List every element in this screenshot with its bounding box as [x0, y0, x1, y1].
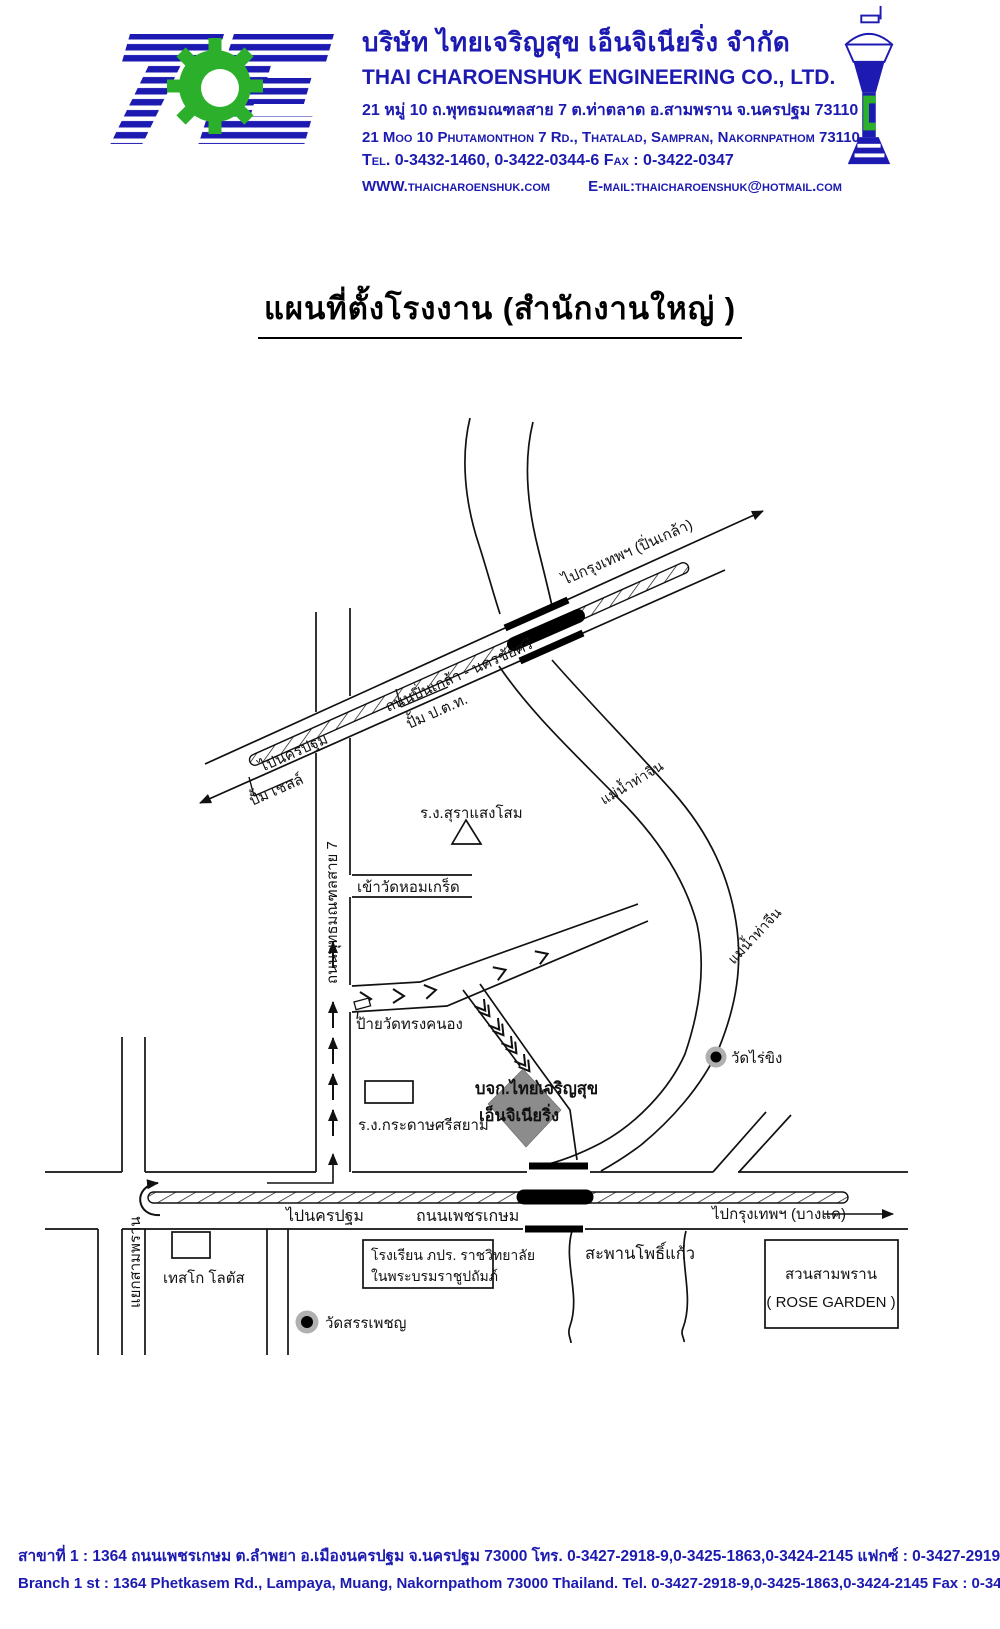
wat-sanphet-marker-icon: [296, 1311, 319, 1334]
label-wat-songkhanong-sign: ป้ายวัดทรงคนอง: [356, 1016, 463, 1033]
label-rose-garden-th: สวนสามพราน: [785, 1266, 877, 1283]
label-rose-garden-en: ( ROSE GARDEN ): [766, 1294, 895, 1311]
page-title-text: แผนที่ตั้งโรงงาน (สำนักงานใหญ่ ): [258, 283, 742, 339]
tesco-box: [172, 1232, 210, 1258]
label-company-line2: เอ็นจิเนียริ่ง: [479, 1103, 559, 1125]
block-boundary: [145, 1229, 288, 1355]
wat-raikhing-marker-icon: [706, 1047, 727, 1068]
logo-gear-icon: [167, 38, 263, 134]
river-bank: [465, 418, 500, 614]
turn-arrow: [267, 1154, 333, 1183]
branch-address-english: Branch 1 st : 1364 Phetkasem Rd., Lampay…: [18, 1575, 982, 1592]
label-wat-raikhing: วัดไร่ขิง: [731, 1049, 782, 1067]
email-text: E-mail:thaicharoenshuk@hotmail.com: [588, 178, 842, 195]
sisiam-factory-box: [365, 1081, 413, 1103]
label-phutthamonthon-road: ถนนพุทธมณฑลสาย 7: [324, 841, 342, 984]
route-arrows: [267, 942, 550, 1183]
label-shell-station: ปั้ม เชลล์: [246, 768, 306, 809]
chevron-icon: [535, 947, 550, 964]
label-to-bangkok-bangkae: ไปกรุงเทพฯ (บางแค): [711, 1205, 846, 1224]
label-sangsom-factory: ร.ง.สุราแสงโสม: [420, 804, 523, 823]
page-title: แผนที่ตั้งโรงงาน (สำนักงานใหญ่ ): [0, 283, 1000, 339]
company-name-thai: บริษัท ไทยเจริญสุข เอ็นจิเนียริ่ง จำกัด: [362, 22, 837, 63]
label-school-line1: โรงเรียน ภปร. ราชวิทยาลัย: [371, 1247, 535, 1263]
road-edge: [352, 921, 648, 1012]
road-edge: [352, 904, 638, 986]
location-map: ไปกรุงเทพฯ (ปิ่นเกล้า) ถนนปิ่นเกล้า - นค…: [0, 380, 1000, 1355]
label-company-line1: บจก.ไทยเจริญสุข: [475, 1078, 598, 1099]
chevron-icon: [493, 963, 508, 980]
address-english: 21 Moo 10 Phutamonthon 7 Rd., Thatalad, …: [362, 129, 837, 146]
road-edge: [122, 1037, 145, 1172]
road-branch-raikhing: [713, 1112, 791, 1172]
tel-fax-line: Tel. 0-3432-1460, 0-3422-0344-6 Fax : 0-…: [362, 152, 837, 170]
marker-dot: [711, 1052, 722, 1063]
road-median-hatched: [148, 1192, 848, 1203]
address-thai: 21 หมู่ 10 ถ.พุทธมณฑลสาย 7 ต.ท่าตลาด อ.ส…: [362, 98, 837, 123]
website-text: WWW.thaicharoenshuk.com: [362, 178, 550, 195]
company-name-english: THAI CHAROENSHUK ENGINEERING CO., LTD.: [362, 66, 837, 90]
branch-address-thai: สาขาที่ 1 : 1364 ถนนเพชรเกษม ต.ลำพยา อ.เ…: [18, 1543, 982, 1568]
label-tesco-lotus: เทสโก โลตัส: [163, 1269, 245, 1287]
label-sisiam-factory: ร.ง.กระดาษศรีสยาม: [358, 1117, 489, 1134]
river-upper: [465, 418, 552, 614]
label-phetkasem-road: ถนนเพชรเกษม: [416, 1208, 519, 1225]
road-edge-north: [205, 511, 763, 764]
tce-logo-icon: [88, 20, 350, 154]
chevron-icon: [393, 989, 404, 1003]
label-thachin-river-1: แม่น้ำท่าจีน: [596, 756, 666, 808]
label-wat-sanphet: วัดสรรเพชญ: [325, 1315, 406, 1332]
label-school-line2: ในพระบรมราชูปถัมภ์: [371, 1268, 498, 1285]
label-thachin-river-2: แม่น้ำท่าจีน: [723, 903, 785, 967]
rose-garden-box: [765, 1240, 898, 1328]
map-canvas: ไปกรุงเทพฯ (ปิ่นเกล้า) ถนนปิ่นเกล้า - นค…: [0, 380, 1000, 1355]
road-edge: [98, 1229, 122, 1355]
label-wat-homkret: เข้าวัดหอมเกร็ด: [357, 877, 460, 896]
right-chevrons-junction-road: [360, 947, 550, 1006]
marker-dot: [301, 1316, 313, 1328]
sangsom-factory-triangle-icon: [452, 820, 481, 844]
web-email-line: WWW.thaicharoenshuk.com E-mail:thaicharo…: [362, 178, 837, 195]
company-header-block: บริษัท ไทยเจริญสุข เอ็นจิเนียริ่ง จำกัด …: [362, 22, 837, 195]
river-bank: [569, 1231, 574, 1343]
label-samphran-junction: แยกสามพราน: [127, 1216, 144, 1308]
label-phokaew-bridge: สะพานโพธิ์แก้ว: [585, 1241, 695, 1263]
phokaew-bridge-bars: [524, 1166, 588, 1229]
footer-branch-info: สาขาที่ 1 : 1364 ถนนเพชรเกษม ต.ลำพยา อ.เ…: [18, 1543, 982, 1592]
label-to-nakhonpathom-lower: ไปนครปฐม: [284, 1206, 364, 1225]
chevron-icon: [424, 983, 437, 999]
river-bank: [527, 422, 552, 606]
sign-plate: [354, 998, 371, 1010]
